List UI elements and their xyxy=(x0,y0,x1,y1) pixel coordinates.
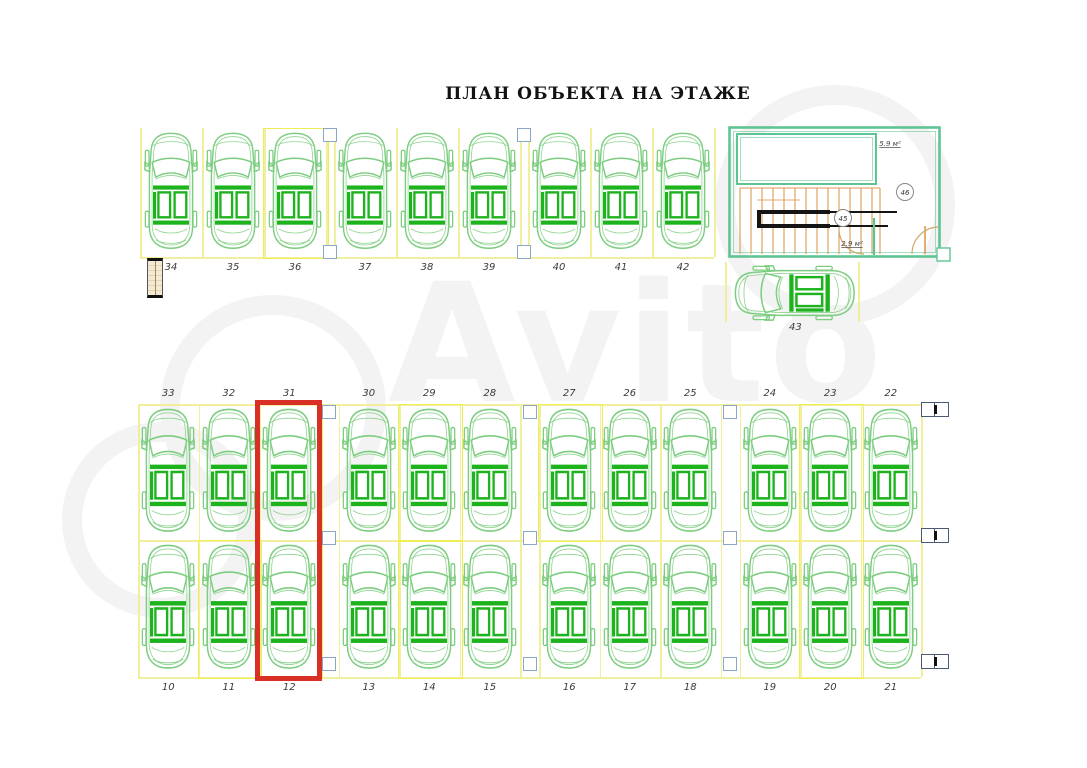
parking-space-41: 41 xyxy=(590,128,652,257)
car-top-view-icon xyxy=(338,131,392,251)
car-top-view-icon xyxy=(342,407,396,534)
car-top-view-icon xyxy=(206,131,260,251)
column-cell xyxy=(935,528,949,543)
parking-space-18: 18 xyxy=(660,540,721,677)
car-top-view-icon xyxy=(463,407,517,534)
structural-column-icon xyxy=(523,531,537,545)
structural-column-icon xyxy=(517,128,531,142)
handrail-icon xyxy=(757,210,830,228)
car-top-view-icon xyxy=(268,131,322,251)
space-number-label: 15 xyxy=(460,682,521,693)
parking-space-19: 19 xyxy=(740,540,801,677)
parking-space-23: 23 xyxy=(800,404,861,540)
space-number-label: 39 xyxy=(458,262,520,273)
car-top-view-icon xyxy=(656,131,710,251)
column-tick xyxy=(934,405,937,414)
highlight-red-box xyxy=(255,400,322,681)
car-top-view-icon xyxy=(603,407,657,534)
space-divider-line xyxy=(140,257,714,259)
car-top-view-icon xyxy=(463,543,517,671)
parking-space-34: 34 xyxy=(140,128,202,257)
structural-column-icon xyxy=(147,258,163,298)
car-top-view-icon xyxy=(400,131,454,251)
space-number-label: 42 xyxy=(652,262,714,273)
column-tick xyxy=(934,531,937,540)
car-top-view-icon xyxy=(141,407,195,534)
parking-space-25: 25 xyxy=(660,404,721,540)
structural-column-icon xyxy=(723,405,737,419)
parking-space-37: 37 xyxy=(334,128,396,257)
space-number-label: 11 xyxy=(199,682,260,693)
space-divider-line xyxy=(520,128,522,257)
space-divider-line xyxy=(520,404,522,540)
structural-column-icon xyxy=(523,657,537,671)
space-number-label: 26 xyxy=(600,388,661,399)
space-divider-line xyxy=(721,404,723,540)
stairwell: 45 46 5.9 м² 2.9 м² xyxy=(728,126,952,270)
parking-space-13: 13 xyxy=(339,540,400,677)
space-number-label: 31 xyxy=(259,388,320,399)
car-top-view-icon xyxy=(663,543,717,671)
structural-column-icon xyxy=(523,405,537,419)
car-top-view-icon xyxy=(462,131,516,251)
column-cell xyxy=(935,654,949,669)
space-number-label: 27 xyxy=(539,388,600,399)
space-number-label: 25 xyxy=(660,388,721,399)
car-top-view-icon xyxy=(663,407,717,534)
stair-room-number: 46 xyxy=(901,189,910,197)
car-top-view-icon xyxy=(542,407,596,534)
space-number-label: 10 xyxy=(138,682,199,693)
structural-column-icon xyxy=(322,657,336,671)
space-number-label: 22 xyxy=(861,388,922,399)
column-tick xyxy=(934,657,937,666)
space-number-label: 32 xyxy=(199,388,260,399)
space-number-label: 37 xyxy=(334,262,396,273)
structural-column-icon xyxy=(517,245,531,259)
car-top-view-icon xyxy=(402,407,456,534)
structural-column-icon xyxy=(323,245,337,259)
space-number-label: 23 xyxy=(800,388,861,399)
parking-space-40: 40 xyxy=(528,128,590,257)
space-number-label: 29 xyxy=(399,388,460,399)
parking-space-27: 27 xyxy=(539,404,600,540)
parking-space-16: 16 xyxy=(539,540,600,677)
parking-space-30: 30 xyxy=(339,404,400,540)
parking-space-24: 24 xyxy=(740,404,801,540)
structural-column-pair-icon xyxy=(921,528,949,543)
space-number-label: 33 xyxy=(138,388,199,399)
space-divider-line xyxy=(921,404,923,540)
structural-column-pair-icon xyxy=(921,402,949,417)
column-cell xyxy=(921,654,935,669)
structural-column-pair-icon xyxy=(921,654,949,669)
car-top-view-icon xyxy=(202,543,256,671)
parking-space-33: 33 xyxy=(138,404,199,540)
structural-column-icon xyxy=(322,531,336,545)
space-number-label: 40 xyxy=(528,262,590,273)
space-number-label: 14 xyxy=(399,682,460,693)
car-top-view-icon xyxy=(594,131,648,251)
car-top-view-icon xyxy=(402,543,456,671)
car-top-view-icon xyxy=(803,407,857,534)
car-top-view-icon xyxy=(733,265,857,321)
space-43-left-line xyxy=(725,262,727,322)
column-cell xyxy=(935,402,949,417)
car-top-view-icon xyxy=(532,131,586,251)
car-top-view-icon xyxy=(864,543,918,671)
space-number-label: 13 xyxy=(339,682,400,693)
space-number-label: 36 xyxy=(264,262,326,273)
space-43-right-line xyxy=(858,262,860,322)
space-number-label: 38 xyxy=(396,262,458,273)
space-number-label: 43 xyxy=(789,322,802,333)
space-divider-line xyxy=(714,128,716,257)
area-label: 5.9 м² xyxy=(879,140,901,148)
space-number-label: 16 xyxy=(539,682,600,693)
car-top-view-icon xyxy=(803,543,857,671)
space-number-label: 41 xyxy=(590,262,652,273)
area-label: 2.9 м² xyxy=(841,240,863,248)
parking-space-38: 38 xyxy=(396,128,458,257)
parking-space-14: 14 xyxy=(399,540,460,677)
space-number-label: 35 xyxy=(202,262,264,273)
space-number-label: 21 xyxy=(861,682,922,693)
parking-space-17: 17 xyxy=(600,540,661,677)
floor-plan-canvas: Avito ПЛАН ОБЪЕКТА НА ЭТАЖЕ 343536373839… xyxy=(0,0,1087,768)
car-top-view-icon xyxy=(144,131,198,251)
parking-space-10: 10 xyxy=(138,540,199,677)
space-number-label: 17 xyxy=(600,682,661,693)
space-number-label: 28 xyxy=(460,388,521,399)
structural-column-icon xyxy=(323,128,337,142)
parking-space-20: 20 xyxy=(800,540,861,677)
parking-space-32: 32 xyxy=(199,404,260,540)
space-number-label: 12 xyxy=(259,682,320,693)
column-cell xyxy=(921,528,935,543)
structural-column-icon xyxy=(322,405,336,419)
car-top-view-icon xyxy=(603,543,657,671)
structural-column-icon xyxy=(723,657,737,671)
space-number-label: 19 xyxy=(740,682,801,693)
parking-space-35: 35 xyxy=(202,128,264,257)
car-top-view-icon xyxy=(141,543,195,671)
space-number-label: 20 xyxy=(800,682,861,693)
car-top-view-icon xyxy=(342,543,396,671)
stair-room-number: 45 xyxy=(839,215,848,223)
parking-space-11: 11 xyxy=(199,540,260,677)
parking-space-39: 39 xyxy=(458,128,520,257)
parking-space-22: 22 xyxy=(861,404,922,540)
car-top-view-icon xyxy=(743,407,797,534)
parking-space-36: 36 xyxy=(264,128,326,257)
car-top-view-icon xyxy=(743,543,797,671)
car-top-view-icon xyxy=(864,407,918,534)
parking-space-29: 29 xyxy=(399,404,460,540)
parking-space-21: 21 xyxy=(861,540,922,677)
parking-space-28: 28 xyxy=(460,404,521,540)
parking-space-26: 26 xyxy=(600,404,661,540)
car-top-view-icon xyxy=(542,543,596,671)
space-number-label: 24 xyxy=(740,388,801,399)
parking-space-42: 42 xyxy=(652,128,714,257)
space-number-label: 30 xyxy=(339,388,400,399)
staircase-icon: 45 46 5.9 м² 2.9 м² xyxy=(728,126,952,266)
structural-column-icon xyxy=(723,531,737,545)
page-title: ПЛАН ОБЪЕКТА НА ЭТАЖЕ xyxy=(445,84,750,104)
column-cell xyxy=(921,402,935,417)
car-top-view-icon xyxy=(202,407,256,534)
space-number-label: 18 xyxy=(660,682,721,693)
parking-space-15: 15 xyxy=(460,540,521,677)
